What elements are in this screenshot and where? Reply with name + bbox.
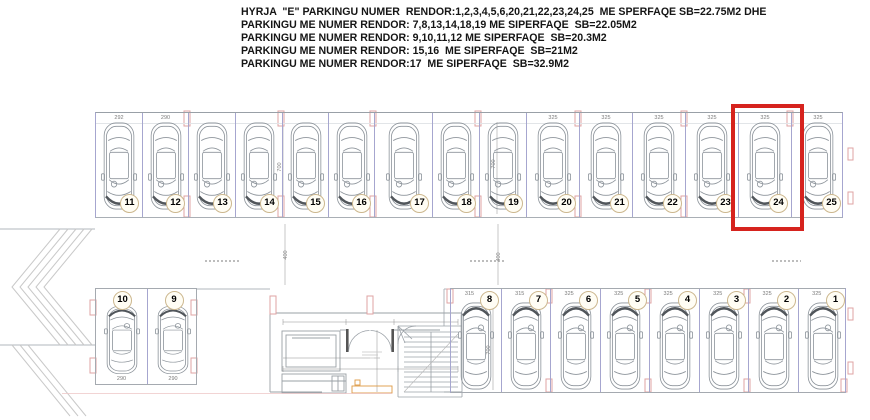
parking-stall-19[interactable]: 19 xyxy=(479,113,526,217)
stall-number-badge: 9 xyxy=(165,291,184,310)
parking-stall-1[interactable]: 3251 xyxy=(798,289,847,392)
stall-number-badge: 17 xyxy=(410,194,429,213)
parking-stall-16[interactable]: 16 xyxy=(328,113,374,217)
stall-dimension-label: 290 xyxy=(96,376,147,382)
car-top-view-icon xyxy=(607,300,643,392)
stall-dimension-label: 290 xyxy=(143,115,188,121)
parking-stall-4[interactable]: 3254 xyxy=(649,289,699,392)
stall-number-badge: 10 xyxy=(113,291,132,310)
ramp-chevron-icon xyxy=(12,229,92,416)
car-top-view-icon xyxy=(458,300,494,392)
car-top-view-icon xyxy=(657,300,693,392)
legend-line-1: HYRJA "E" PARKINGU NUMER RENDOR:1,2,3,4,… xyxy=(241,6,767,19)
stall-dimension-label: 292 xyxy=(96,115,142,121)
stall-number-badge: 4 xyxy=(678,291,697,310)
parking-stall-20[interactable]: 32520 xyxy=(526,113,579,217)
parking-stall-8[interactable]: 3158 xyxy=(451,289,501,392)
parking-stall-21[interactable]: 32521 xyxy=(579,113,632,217)
stall-number-badge: 2 xyxy=(777,291,796,310)
stall-dimension-label: 325 xyxy=(580,115,632,121)
car-top-view-icon xyxy=(155,304,191,376)
stall-number-badge: 11 xyxy=(120,194,139,213)
parking-stall-6[interactable]: 3256 xyxy=(550,289,600,392)
parking-stall-11[interactable]: 29211 xyxy=(96,113,142,217)
parking-stall-2[interactable]: 3252 xyxy=(748,289,798,392)
parking-stall-5[interactable]: 3255 xyxy=(600,289,649,392)
stall-number-badge: 7 xyxy=(529,291,548,310)
stall-dimension-label: 325 xyxy=(527,115,579,121)
legend-line-4: PARKINGU ME NUMER RENDOR: 15,16 ME SIPER… xyxy=(241,45,767,58)
elevator-shaft xyxy=(282,331,340,371)
parking-stall-17[interactable]: 17 xyxy=(374,113,432,217)
parking-stall-22[interactable]: 32522 xyxy=(632,113,685,217)
parking-stall-13[interactable]: 13 xyxy=(188,113,235,217)
stall-dimension-label: 290 xyxy=(148,376,198,382)
ramp-boundary xyxy=(0,229,450,345)
stall-number-badge: 16 xyxy=(352,194,371,213)
parking-row-bottom-right: 31583157325632553254325332523251 xyxy=(450,288,846,393)
car-top-view-icon xyxy=(104,304,140,376)
car-top-view-icon xyxy=(508,300,544,392)
car-top-view-icon xyxy=(805,300,841,392)
parking-stall-12[interactable]: 29012 xyxy=(142,113,188,217)
stall-number-badge: 22 xyxy=(663,194,682,213)
stall-number-badge: 14 xyxy=(260,194,279,213)
stall-number-badge: 1 xyxy=(826,291,845,310)
dimension-text: 400 xyxy=(283,250,289,259)
parking-stall-18[interactable]: 18 xyxy=(432,113,479,217)
parking-stall-9[interactable]: 2909 xyxy=(147,289,198,384)
car-top-view-icon xyxy=(558,300,594,392)
stall-dimension-label: 325 xyxy=(633,115,685,121)
plan-legend-text: HYRJA "E" PARKINGU NUMER RENDOR:1,2,3,4,… xyxy=(241,6,767,71)
parking-stall-3[interactable]: 3253 xyxy=(699,289,748,392)
dimension-text: 400 xyxy=(496,252,502,261)
double-door xyxy=(346,329,394,352)
stall-number-badge: 5 xyxy=(628,291,647,310)
stall-number-badge: 25 xyxy=(822,194,841,213)
stall-number-badge: 6 xyxy=(579,291,598,310)
stall-number-badge: 12 xyxy=(166,194,185,213)
stall-number-badge: 13 xyxy=(213,194,232,213)
parking-stall-7[interactable]: 3157 xyxy=(501,289,550,392)
stall-number-badge: 18 xyxy=(457,194,476,213)
ramp-marking xyxy=(352,380,392,393)
legend-line-3: PARKINGU ME NUMER RENDOR: 9,10,11,12 ME … xyxy=(241,32,767,45)
highlight-box-stall-24 xyxy=(731,104,804,231)
stall-number-badge: 3 xyxy=(727,291,746,310)
parking-stall-14[interactable]: 14 xyxy=(235,113,282,217)
stall-number-badge: 8 xyxy=(480,291,499,310)
car-top-view-icon xyxy=(706,300,742,392)
stall-number-badge: 20 xyxy=(557,194,576,213)
parking-stall-15[interactable]: 15 xyxy=(282,113,328,217)
legend-line-2: PARKINGU ME NUMER RENDOR: 7,8,13,14,18,1… xyxy=(241,19,767,32)
storage-cabinet xyxy=(282,374,346,393)
parking-row-bottom-left: 290102909 xyxy=(95,288,197,385)
stall-number-badge: 19 xyxy=(504,194,523,213)
legend-line-5: PARKINGU ME NUMER RENDOR:17 ME SIPERFAQE… xyxy=(241,58,767,71)
illegible-note xyxy=(362,352,382,358)
car-top-view-icon xyxy=(756,300,792,392)
stairwell-lobby xyxy=(270,313,462,392)
parking-floor-plan: HYRJA "E" PARKINGU NUMER RENDOR:1,2,3,4,… xyxy=(0,0,870,420)
stall-number-badge: 21 xyxy=(610,194,629,213)
parking-stall-10[interactable]: 29010 xyxy=(96,289,147,384)
stall-number-badge: 15 xyxy=(306,194,325,213)
